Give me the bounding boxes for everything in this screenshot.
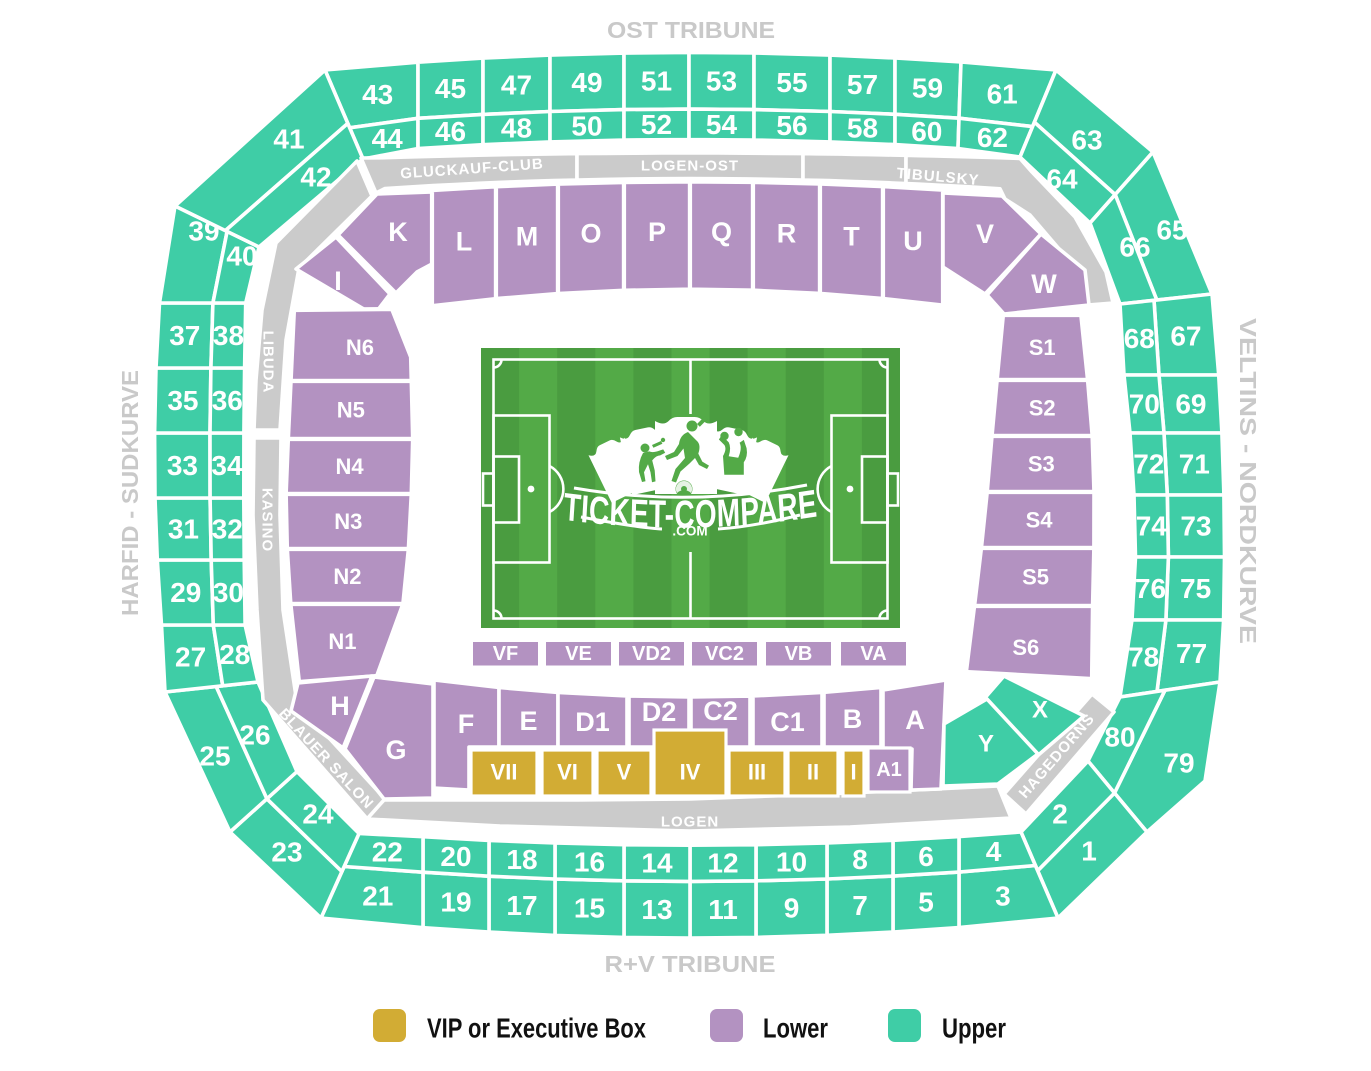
svg-text:73: 73 — [1180, 511, 1211, 542]
svg-text:32: 32 — [212, 514, 243, 545]
svg-text:KASINO: KASINO — [259, 488, 276, 552]
svg-text:38: 38 — [213, 320, 244, 351]
svg-text:48: 48 — [501, 113, 532, 144]
svg-text:16: 16 — [574, 846, 605, 877]
svg-text:OST TRIBUNE: OST TRIBUNE — [607, 17, 775, 43]
svg-text:78: 78 — [1128, 642, 1159, 673]
svg-text:45: 45 — [435, 73, 466, 104]
svg-text:K: K — [388, 217, 408, 247]
svg-text:54: 54 — [706, 109, 738, 140]
svg-text:59: 59 — [912, 73, 943, 104]
svg-text:80: 80 — [1104, 722, 1135, 753]
svg-text:VII: VII — [491, 760, 518, 785]
svg-text:VB: VB — [785, 643, 813, 665]
svg-text:V: V — [617, 760, 632, 785]
svg-text:I: I — [334, 266, 342, 296]
svg-text:M: M — [516, 222, 539, 252]
svg-text:D1: D1 — [575, 707, 610, 737]
svg-text:Upper: Upper — [942, 1013, 1006, 1044]
svg-text:24: 24 — [302, 799, 334, 830]
svg-text:72: 72 — [1133, 449, 1164, 480]
svg-text:43: 43 — [362, 79, 393, 110]
svg-text:79: 79 — [1163, 748, 1194, 779]
svg-text:6: 6 — [918, 841, 934, 872]
svg-text:41: 41 — [273, 124, 304, 155]
svg-text:LOGEN-OST: LOGEN-OST — [641, 158, 739, 175]
svg-text:17: 17 — [506, 890, 537, 921]
svg-text:62: 62 — [977, 122, 1008, 153]
svg-text:A1: A1 — [876, 759, 902, 781]
svg-text:.COM: .COM — [672, 524, 707, 539]
svg-text:R: R — [777, 219, 797, 249]
svg-text:65: 65 — [1156, 215, 1187, 246]
svg-text:Lower: Lower — [763, 1013, 828, 1044]
svg-text:34: 34 — [211, 450, 243, 481]
svg-text:VE: VE — [565, 643, 592, 665]
svg-text:66: 66 — [1119, 232, 1150, 263]
svg-text:22: 22 — [372, 837, 403, 868]
svg-text:1: 1 — [1081, 836, 1097, 867]
svg-text:S6: S6 — [1012, 635, 1039, 660]
svg-text:23: 23 — [271, 837, 302, 868]
svg-text:VF: VF — [493, 643, 519, 665]
svg-text:4: 4 — [986, 836, 1002, 867]
svg-text:P: P — [648, 217, 666, 247]
svg-text:N3: N3 — [334, 509, 362, 534]
svg-text:51: 51 — [641, 66, 672, 97]
svg-text:44: 44 — [372, 123, 404, 154]
svg-text:N5: N5 — [337, 398, 365, 423]
svg-text:76: 76 — [1135, 573, 1166, 604]
svg-text:29: 29 — [170, 577, 201, 608]
svg-text:III: III — [748, 760, 766, 785]
svg-text:30: 30 — [213, 577, 244, 608]
svg-text:50: 50 — [571, 110, 602, 141]
svg-text:VD2: VD2 — [632, 643, 671, 665]
svg-text:63: 63 — [1071, 125, 1102, 156]
svg-text:77: 77 — [1176, 638, 1207, 669]
svg-text:D2: D2 — [642, 697, 677, 727]
svg-text:55: 55 — [776, 67, 807, 98]
svg-text:19: 19 — [440, 887, 471, 918]
svg-text:LIBUDA: LIBUDA — [260, 331, 277, 394]
svg-text:VI: VI — [557, 760, 578, 785]
svg-text:53: 53 — [706, 66, 737, 97]
svg-text:11: 11 — [708, 894, 738, 925]
svg-text:B: B — [843, 704, 863, 734]
svg-text:VC2: VC2 — [705, 643, 744, 665]
svg-text:56: 56 — [776, 110, 807, 141]
svg-text:9: 9 — [784, 893, 800, 924]
svg-text:42: 42 — [300, 162, 331, 193]
svg-text:8: 8 — [852, 844, 868, 875]
svg-text:L: L — [456, 226, 473, 256]
svg-text:25: 25 — [199, 741, 230, 772]
svg-text:R+V TRIBUNE: R+V TRIBUNE — [605, 951, 776, 977]
svg-text:69: 69 — [1175, 389, 1206, 420]
svg-text:46: 46 — [435, 116, 466, 147]
svg-text:HARFID - SUDKURVE: HARFID - SUDKURVE — [117, 370, 143, 616]
svg-text:68: 68 — [1124, 323, 1155, 354]
svg-text:N1: N1 — [328, 629, 356, 654]
svg-text:2: 2 — [1052, 799, 1068, 830]
svg-text:VA: VA — [860, 643, 886, 665]
svg-text:V: V — [976, 219, 994, 249]
svg-text:67: 67 — [1170, 321, 1201, 352]
svg-text:N4: N4 — [336, 454, 365, 479]
svg-text:N2: N2 — [333, 564, 361, 589]
svg-text:18: 18 — [506, 844, 537, 875]
svg-text:49: 49 — [571, 67, 602, 98]
svg-text:S1: S1 — [1029, 335, 1056, 360]
svg-text:58: 58 — [847, 113, 878, 144]
svg-text:C1: C1 — [770, 707, 805, 737]
svg-text:F: F — [458, 709, 475, 739]
svg-text:E: E — [519, 706, 537, 736]
svg-text:G: G — [385, 735, 406, 765]
svg-text:28: 28 — [219, 639, 250, 670]
svg-text:47: 47 — [501, 69, 532, 100]
svg-text:33: 33 — [167, 450, 198, 481]
svg-text:37: 37 — [169, 320, 200, 351]
svg-text:31: 31 — [168, 514, 199, 545]
svg-text:60: 60 — [911, 116, 942, 147]
svg-text:36: 36 — [212, 385, 243, 416]
svg-text:52: 52 — [641, 109, 672, 140]
svg-text:70: 70 — [1129, 389, 1160, 420]
svg-text:3: 3 — [995, 880, 1011, 911]
svg-text:S4: S4 — [1026, 508, 1054, 533]
svg-text:71: 71 — [1179, 449, 1210, 480]
svg-text:I: I — [850, 760, 856, 785]
svg-text:27: 27 — [175, 642, 206, 673]
svg-text:5: 5 — [918, 886, 934, 917]
svg-text:13: 13 — [641, 894, 672, 925]
svg-text:57: 57 — [847, 69, 878, 100]
svg-text:Q: Q — [711, 217, 732, 247]
svg-text:35: 35 — [167, 385, 198, 416]
svg-text:26: 26 — [239, 720, 270, 751]
svg-text:S5: S5 — [1022, 565, 1049, 590]
svg-text:T: T — [843, 222, 860, 252]
svg-text:61: 61 — [987, 79, 1018, 110]
svg-text:20: 20 — [440, 841, 471, 872]
svg-text:VIP or Executive Box: VIP or Executive Box — [427, 1013, 646, 1044]
svg-text:21: 21 — [362, 881, 393, 912]
svg-text:C2: C2 — [703, 696, 738, 726]
svg-text:H: H — [330, 691, 350, 721]
svg-text:75: 75 — [1180, 573, 1211, 604]
svg-text:II: II — [807, 760, 819, 785]
svg-text:IV: IV — [680, 760, 701, 785]
svg-text:15: 15 — [574, 893, 605, 924]
svg-text:S3: S3 — [1028, 452, 1055, 477]
svg-text:VELTINS - NORDKURVE: VELTINS - NORDKURVE — [1235, 318, 1261, 644]
svg-text:S2: S2 — [1029, 396, 1056, 421]
svg-text:10: 10 — [776, 846, 807, 877]
svg-text:12: 12 — [707, 848, 738, 879]
svg-text:74: 74 — [1136, 511, 1168, 542]
svg-text:A: A — [905, 705, 925, 735]
svg-text:N6: N6 — [346, 335, 374, 360]
svg-text:Y: Y — [978, 731, 994, 758]
svg-text:X: X — [1032, 697, 1048, 724]
svg-text:O: O — [580, 219, 601, 249]
svg-text:14: 14 — [641, 848, 673, 879]
svg-text:W: W — [1031, 269, 1057, 299]
svg-text:7: 7 — [852, 890, 868, 921]
svg-text:U: U — [903, 226, 923, 256]
svg-text:LOGEN: LOGEN — [661, 814, 719, 831]
